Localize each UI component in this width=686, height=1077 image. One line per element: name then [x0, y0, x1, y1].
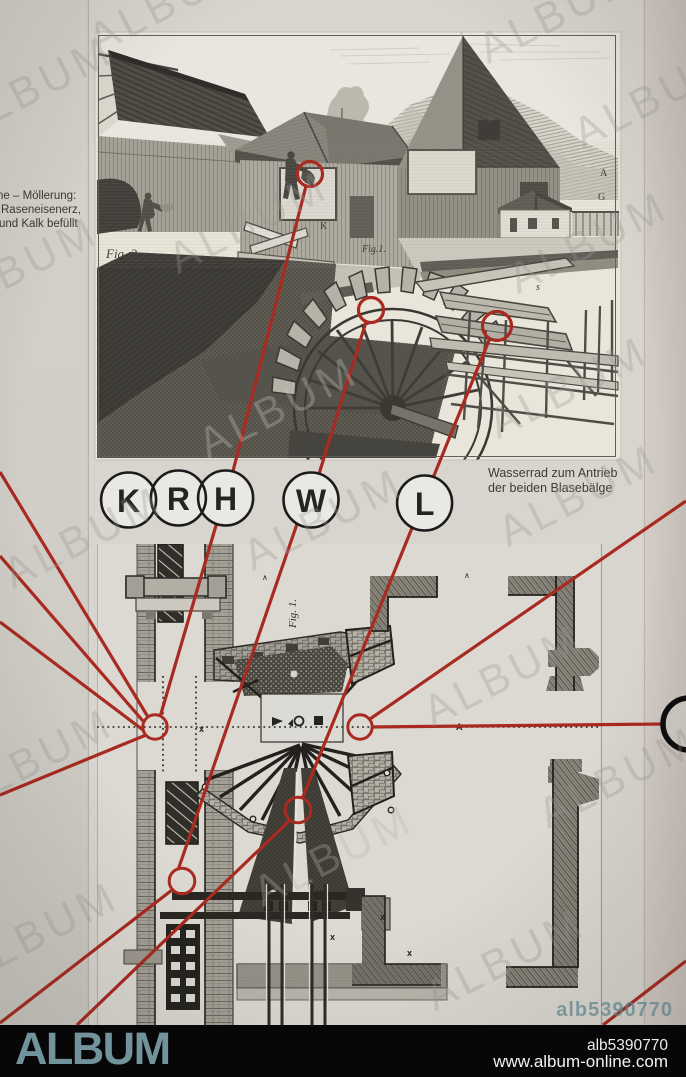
svg-text:www.album-online.com: www.album-online.com: [492, 1052, 668, 1071]
svg-text:ALBUM: ALBUM: [15, 1023, 169, 1074]
